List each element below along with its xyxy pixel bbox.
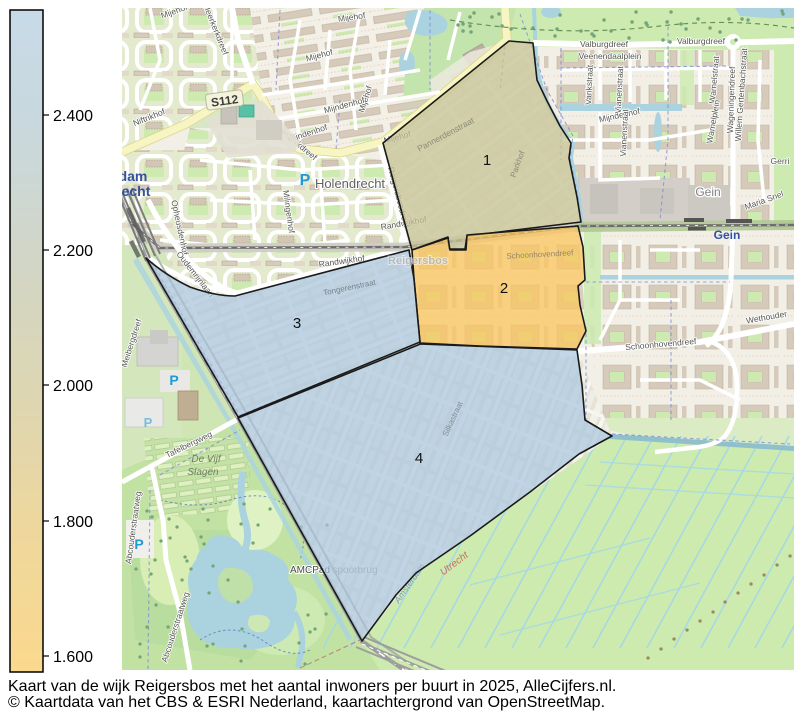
svg-text:2.400: 2.400 <box>53 108 93 125</box>
svg-text:Holendrecht: Holendrecht <box>315 176 385 191</box>
svg-text:3: 3 <box>293 315 301 332</box>
svg-text:1.600: 1.600 <box>53 649 93 666</box>
svg-text:P: P <box>144 415 153 430</box>
svg-text:Gein: Gein <box>714 228 741 242</box>
svg-text:Gein: Gein <box>695 185 720 199</box>
svg-text:Gerri: Gerri <box>771 156 790 166</box>
svg-text:2: 2 <box>500 280 508 297</box>
svg-text:P: P <box>300 172 311 189</box>
svg-text:Varikstraat: Varikstraat <box>583 64 595 105</box>
svg-text:Reigersbos: Reigersbos <box>388 255 448 267</box>
svg-text:De Vijf: De Vijf <box>191 454 221 465</box>
svg-text:4: 4 <box>415 450 423 467</box>
svg-text:dam: dam <box>119 168 148 184</box>
svg-text:Valburgdreef: Valburgdreef <box>580 39 629 49</box>
svg-text:1.800: 1.800 <box>53 514 93 531</box>
svg-text:P: P <box>169 372 178 388</box>
svg-text:1: 1 <box>483 152 491 169</box>
svg-text:Slagen: Slagen <box>187 467 219 478</box>
svg-text:Valburgdreef: Valburgdreef <box>677 36 726 46</box>
svg-text:Veenendaalplein: Veenendaalplein <box>579 51 642 61</box>
svg-text:© Kaartdata van het CBS & ESRI: © Kaartdata van het CBS & ESRI Nederland… <box>8 694 605 711</box>
svg-text:Kaart van de wijk Reigersbos m: Kaart van de wijk Reigersbos met het aan… <box>8 678 616 695</box>
svg-text:echt: echt <box>122 183 151 199</box>
svg-text:P: P <box>134 536 143 552</box>
svg-text:2.000: 2.000 <box>53 378 93 395</box>
svg-text:2.200: 2.200 <box>53 243 93 260</box>
